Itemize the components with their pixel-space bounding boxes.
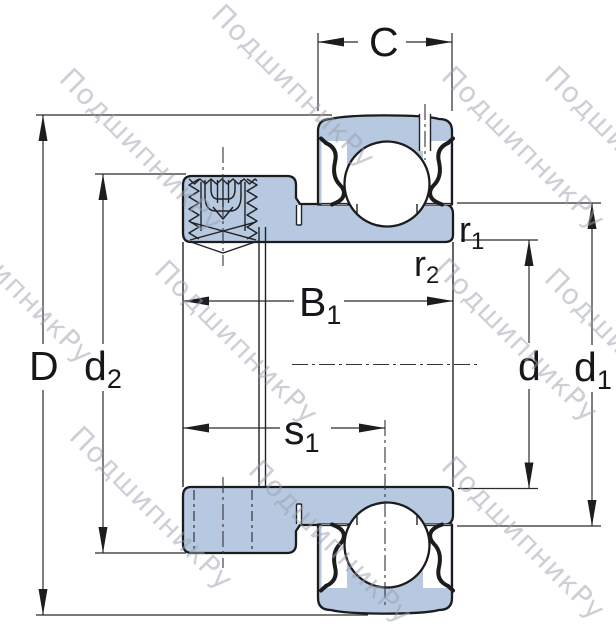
bearing-cross-section-drawing: C D d2 B1 s1 d d1 <box>0 0 616 638</box>
label-C: C <box>369 19 399 65</box>
bearing-drawing-page: C D d2 B1 s1 d d1 <box>0 0 616 638</box>
label-D: D <box>29 343 59 389</box>
